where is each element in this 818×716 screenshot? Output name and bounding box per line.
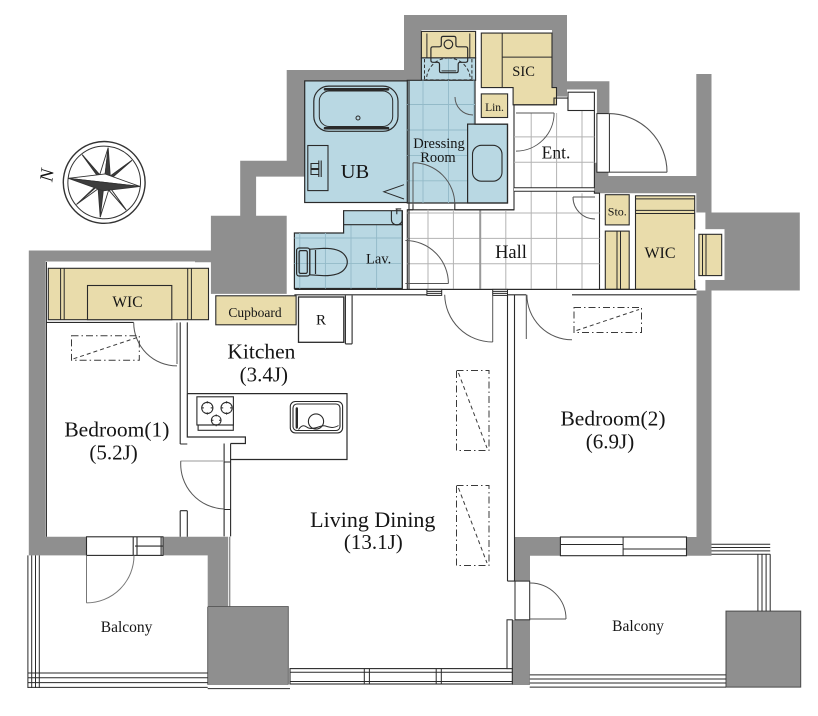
svg-text:Lav.: Lav. <box>366 252 391 268</box>
svg-text:Ent.: Ent. <box>542 143 571 163</box>
svg-text:R: R <box>316 313 326 329</box>
svg-text:Balcony: Balcony <box>612 618 664 635</box>
svg-text:Lin.: Lin. <box>485 102 504 114</box>
svg-text:(3.4J): (3.4J) <box>240 363 288 387</box>
svg-text:(13.1J): (13.1J) <box>344 530 403 554</box>
svg-text:Sto.: Sto. <box>608 205 627 219</box>
svg-text:Kitchen: Kitchen <box>227 340 295 364</box>
svg-text:WIC: WIC <box>644 245 675 262</box>
svg-text:Hall: Hall <box>495 243 527 263</box>
svg-text:(6.9J): (6.9J) <box>586 430 634 454</box>
svg-text:Room: Room <box>420 150 456 166</box>
svg-text:Living Dining: Living Dining <box>310 507 435 532</box>
svg-text:Bedroom(2): Bedroom(2) <box>560 407 665 431</box>
svg-text:WIC: WIC <box>112 294 142 311</box>
svg-text:Cupboard: Cupboard <box>228 305 281 320</box>
svg-text:Bedroom(1): Bedroom(1) <box>64 418 169 442</box>
svg-text:(5.2J): (5.2J) <box>89 441 137 465</box>
svg-text:SIC: SIC <box>512 64 535 80</box>
svg-text:Balcony: Balcony <box>101 619 153 636</box>
svg-text:UB: UB <box>341 161 369 183</box>
